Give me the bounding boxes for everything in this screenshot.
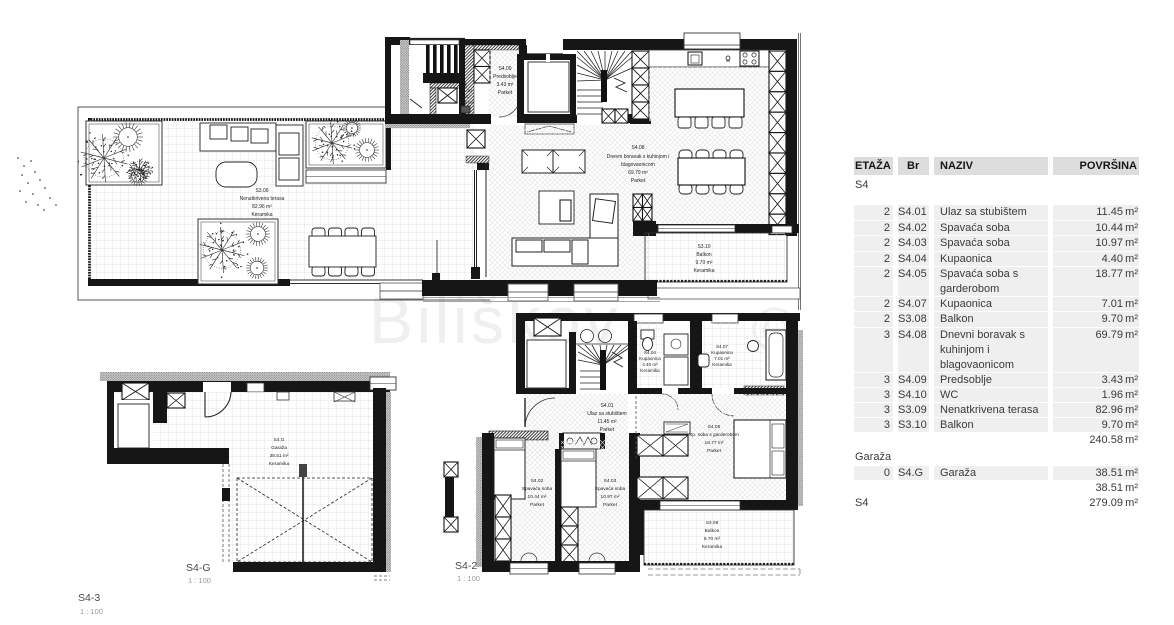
svg-text:S4-G: S4-G [186, 562, 211, 574]
svg-text:Keramika: Keramika [269, 461, 290, 467]
svg-text:Parket: Parket [707, 448, 722, 454]
svg-text:S3.09: S3.09 [255, 188, 268, 194]
svg-text:Keramika: Keramika [251, 212, 272, 218]
svg-text:1 : 100: 1 : 100 [188, 576, 211, 585]
svg-text:Ulaz sa stubištem: Ulaz sa stubištem [587, 411, 626, 417]
svg-text:9.70 m²: 9.70 m² [704, 536, 721, 542]
svg-text:10.97 m²: 10.97 m² [601, 494, 620, 500]
svg-text:Keramika: Keramika [712, 362, 732, 367]
svg-text:Parket: Parket [600, 427, 615, 433]
svg-text:Garaža: Garaža [271, 445, 287, 451]
svg-text:18.77 m²: 18.77 m² [705, 440, 724, 446]
svg-text:Parket: Parket [498, 90, 513, 96]
svg-text:S4.02: S4.02 [531, 478, 544, 484]
svg-text:Parket: Parket [631, 178, 646, 184]
svg-text:S4.05: S4.05 [708, 424, 721, 430]
svg-text:S4.08: S4.08 [631, 145, 644, 151]
svg-text:Keramika: Keramika [702, 544, 723, 550]
svg-text:1 : 100: 1 : 100 [457, 574, 480, 583]
svg-text:Spavaća soba: Spavaća soba [522, 486, 553, 492]
svg-text:blagovaonicom: blagovaonicom [621, 162, 655, 168]
svg-text:S3.10: S3.10 [697, 244, 710, 250]
svg-text:1.96 m²: 1.96 m² [459, 100, 474, 105]
svg-text:Spavaća soba: Spavaća soba [595, 486, 626, 492]
svg-text:Balkon: Balkon [705, 528, 720, 534]
svg-text:S4.09: S4.09 [498, 66, 511, 72]
svg-text:S4-2: S4-2 [455, 560, 477, 572]
svg-text:S4.G: S4.G [274, 437, 285, 443]
svg-text:S4.07: S4.07 [716, 344, 728, 349]
svg-text:S3.08: S3.08 [706, 520, 719, 526]
svg-text:S4.03: S4.03 [604, 478, 617, 484]
svg-text:S4.10: S4.10 [460, 88, 472, 93]
svg-text:Predsoblje: Predsoblje [493, 74, 517, 80]
svg-text:Keramika: Keramika [640, 368, 660, 373]
svg-text:3.43 m²: 3.43 m² [497, 82, 514, 88]
svg-text:9.70 m²: 9.70 m² [696, 260, 713, 266]
svg-text:Kupaonica: Kupaonica [711, 350, 733, 355]
svg-text:82.96 m²: 82.96 m² [252, 204, 272, 210]
svg-text:Parket: Parket [530, 502, 545, 508]
svg-text:Parket: Parket [603, 502, 618, 508]
svg-text:4.40 m²: 4.40 m² [642, 362, 658, 367]
svg-text:S4.04: S4.04 [644, 350, 656, 355]
svg-text:Keramika: Keramika [693, 268, 714, 274]
svg-text:S4.01: S4.01 [600, 403, 613, 409]
svg-text:Balkon: Balkon [696, 252, 712, 258]
svg-text:Nenatkrivena terasa: Nenatkrivena terasa [240, 196, 285, 202]
svg-text:Kupaonica: Kupaonica [639, 356, 661, 361]
svg-text:WC: WC [462, 94, 469, 99]
svg-text:7.01 m²: 7.01 m² [714, 356, 730, 361]
svg-text:38.51 m²: 38.51 m² [270, 453, 289, 459]
svg-text:S4-3: S4-3 [78, 592, 100, 604]
svg-text:Sp. soba s garderobom: Sp. soba s garderobom [689, 432, 739, 438]
svg-text:11.45 m²: 11.45 m² [597, 419, 617, 425]
svg-text:69.79 m²: 69.79 m² [628, 170, 648, 176]
svg-text:1 : 100: 1 : 100 [80, 607, 103, 616]
svg-text:10.44 m²: 10.44 m² [528, 494, 547, 500]
svg-text:Dnevni boravak s kuhinjom i: Dnevni boravak s kuhinjom i [607, 154, 670, 160]
